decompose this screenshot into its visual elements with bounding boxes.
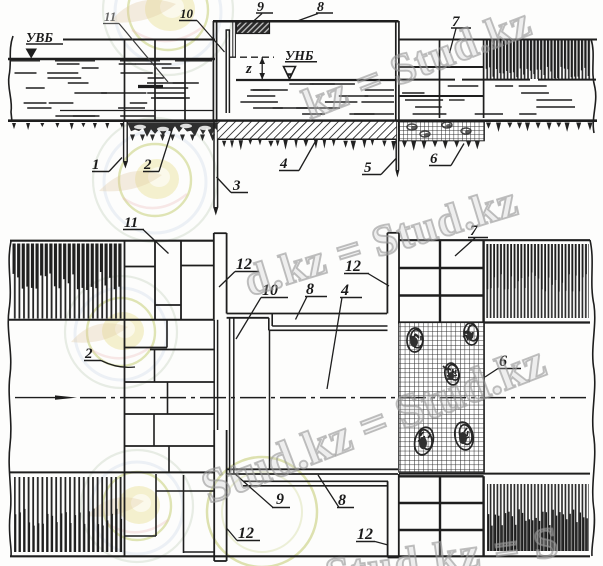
svg-text:12: 12	[238, 525, 254, 542]
svg-text:УНБ: УНБ	[285, 48, 314, 63]
svg-text:2: 2	[143, 157, 152, 173]
svg-text:9: 9	[276, 491, 284, 508]
svg-text:z: z	[245, 61, 252, 77]
svg-text:4: 4	[340, 282, 349, 299]
svg-text:11: 11	[104, 9, 116, 24]
svg-text:5: 5	[364, 160, 372, 176]
svg-text:3: 3	[232, 178, 241, 194]
svg-text:2: 2	[84, 346, 93, 362]
svg-text:8: 8	[338, 492, 346, 509]
svg-text:4: 4	[279, 156, 288, 172]
svg-text:10: 10	[180, 6, 194, 21]
svg-text:11: 11	[124, 215, 138, 231]
svg-text:6: 6	[430, 151, 438, 167]
svg-text:УВБ: УВБ	[26, 30, 53, 45]
svg-text:1: 1	[92, 157, 100, 173]
svg-text:12: 12	[357, 526, 373, 543]
